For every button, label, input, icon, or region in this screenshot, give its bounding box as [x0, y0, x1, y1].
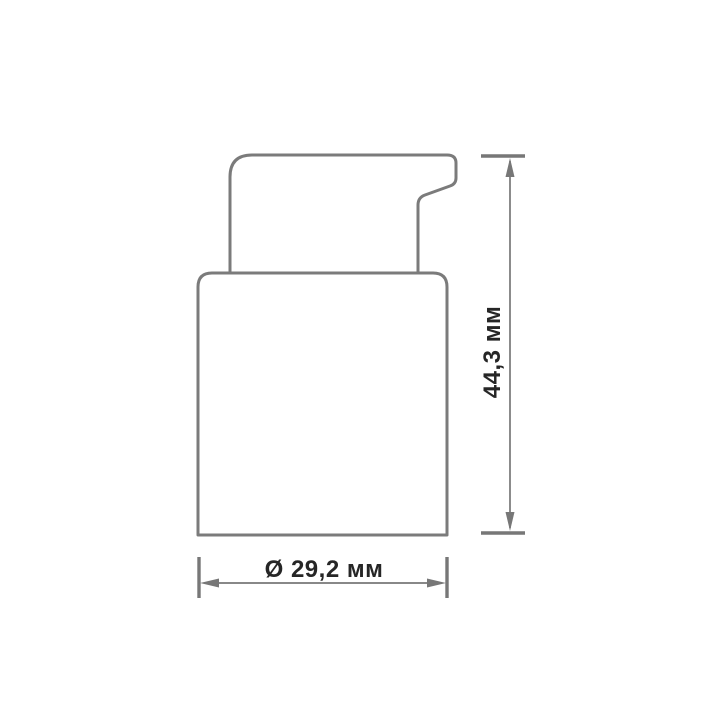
diameter-dimension-label: Ø 29,2 мм	[265, 556, 384, 583]
height-dimension-label: 44,3 мм	[479, 306, 506, 398]
technical-drawing-canvas: 44,3 мм Ø 29,2 мм	[0, 0, 720, 720]
drawing-page: 44,3 мм Ø 29,2 мм	[0, 0, 720, 720]
page-background	[0, 0, 720, 720]
